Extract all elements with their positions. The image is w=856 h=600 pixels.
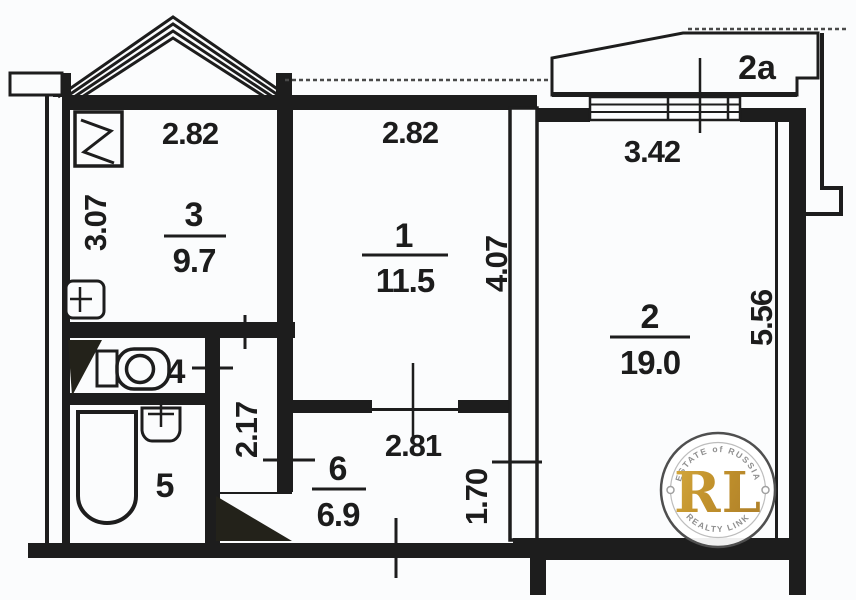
room1-area: 11.5 (376, 262, 435, 299)
bottom-stub-left (530, 552, 546, 595)
floorplan-page: 2.82 3.07 3 9.7 2.82 4.07 1 11.5 3.42 5.… (0, 0, 856, 600)
kitchen-sink-icon (66, 281, 104, 318)
bottom-stub-right (789, 552, 806, 595)
stove-icon (75, 112, 122, 166)
room1-height-dim: 4.07 (479, 236, 514, 292)
room1-room2-cavity-wall (510, 108, 537, 540)
hall-area: 6.9 (317, 496, 361, 533)
room1-door-threshold (372, 408, 458, 411)
washbasin-icon (142, 401, 180, 441)
kitchen-width-dim: 2.82 (162, 116, 218, 151)
kitchen-bottom-wall (62, 322, 295, 338)
room2-width-dim: 3.42 (624, 134, 680, 169)
room1-bottom-wall-left (277, 400, 372, 413)
left-wall-inner (62, 95, 70, 545)
corridor-width-dim: 2.17 (229, 402, 264, 458)
bottom-wall-main (28, 543, 530, 558)
toilet-number: 4 (167, 353, 186, 391)
room2-top-wall-left (537, 108, 590, 122)
room2-right-wall-band (789, 108, 806, 548)
facade-notch-bottom (806, 212, 843, 216)
left-wall-outer (45, 95, 49, 558)
room2-number: 2 (641, 298, 660, 336)
balcony-window (590, 97, 740, 120)
watermark-right-dot (762, 487, 769, 494)
facade-right-line (820, 33, 824, 190)
watermark-monogram: RL (674, 460, 762, 526)
bathtub-icon (78, 412, 136, 523)
left-wall-stub (10, 73, 62, 95)
kitchen-area: 9.7 (173, 242, 216, 279)
hall-number: 6 (329, 450, 348, 488)
watermark-left-dot (667, 487, 674, 494)
kitchen-height-dim: 3.07 (78, 195, 113, 251)
bottom-ledge (530, 552, 806, 560)
room2-bottom-wall (513, 538, 806, 552)
toilet-icon (97, 349, 169, 389)
hall-width-dim: 2.81 (385, 428, 442, 463)
balcony-number: 2a (738, 49, 777, 87)
toilet-bath-divider (62, 393, 220, 405)
room1-number: 1 (395, 217, 414, 255)
hall-height-dim: 1.70 (459, 469, 494, 525)
facade-notch-right (839, 186, 843, 216)
watermark-logo: ESTATE of RUSSIA REALTY LINK RL (661, 433, 775, 547)
room1-width-dim: 2.82 (382, 115, 438, 150)
kitchen-room1-wall (277, 95, 293, 492)
floor-plan: 2.82 3.07 3 9.7 2.82 4.07 1 11.5 3.42 5.… (0, 0, 856, 600)
room2-height-dim: 5.56 (744, 289, 779, 346)
top-wall (62, 95, 537, 110)
kitchen-number: 3 (185, 196, 204, 234)
bathroom-number: 5 (156, 467, 175, 505)
room2-area: 19.0 (620, 344, 680, 381)
